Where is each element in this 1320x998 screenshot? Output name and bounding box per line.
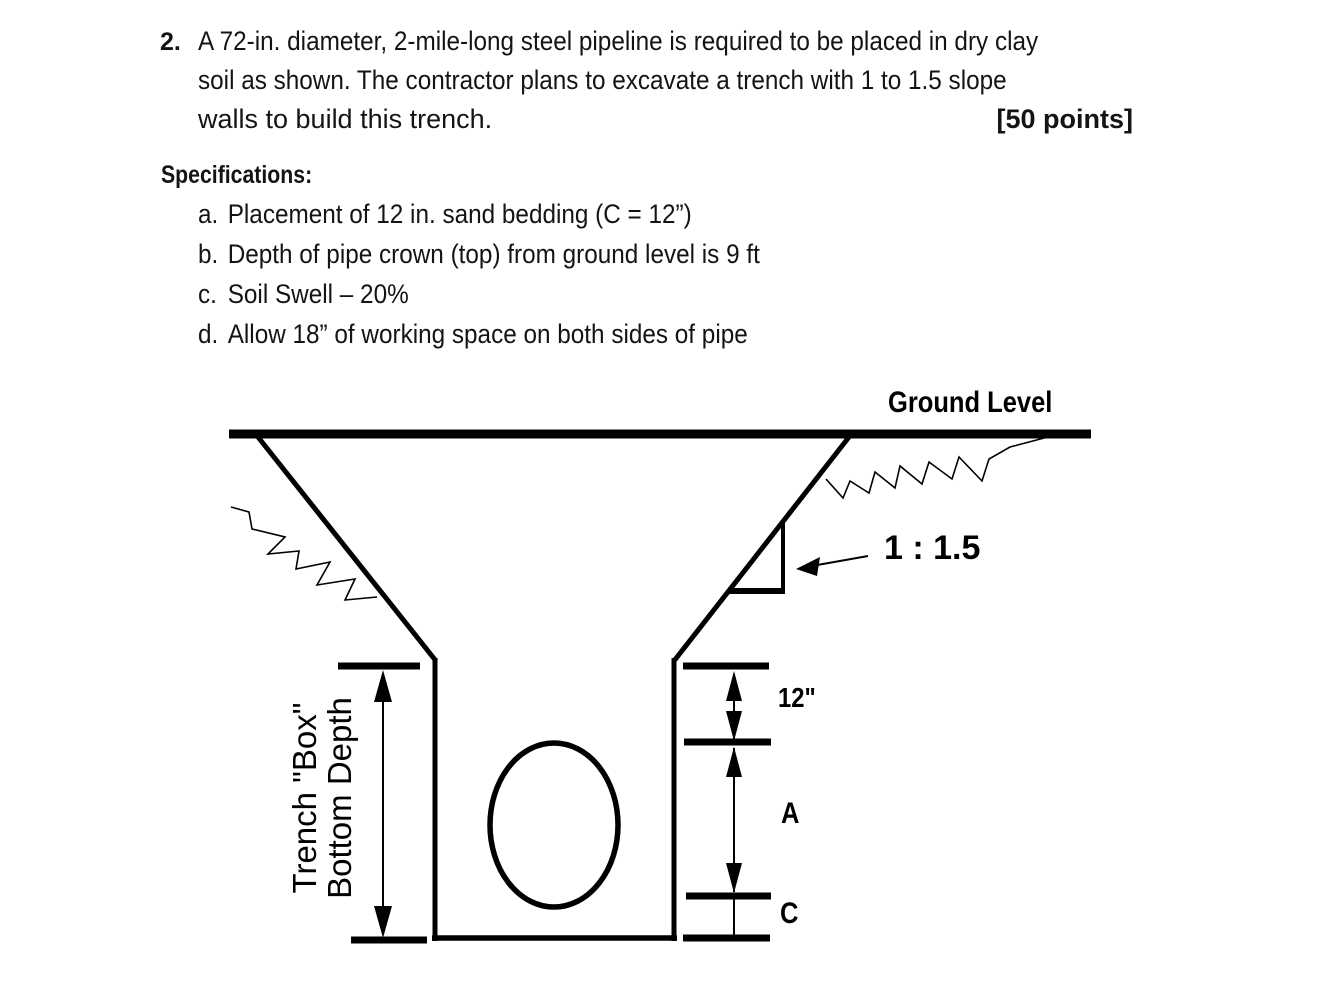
left-ground-break-line	[231, 507, 377, 600]
ground-level-label: Ground Level	[888, 386, 1052, 420]
right-slope-line	[674, 437, 849, 661]
document-page: 2. A 72-in. diameter, 2-mile-long steel …	[0, 0, 1320, 998]
bedding-dim-label: 12"	[778, 682, 816, 714]
trench-depth-label-line1: Trench "Box"	[287, 678, 322, 918]
bedding-dim-arrow-up	[726, 671, 742, 701]
slope-ratio-label: 1 : 1.5	[884, 529, 980, 568]
trench-diagram	[0, 0, 1320, 998]
depth-dim-arrow-down	[374, 906, 392, 938]
right-ground-break-line	[826, 437, 1048, 498]
slope-leader-arrowhead	[796, 557, 820, 576]
pipe-circle	[490, 743, 618, 907]
bedding-dim-arrow-down	[726, 711, 742, 741]
depth-dim-arrow-up	[374, 670, 392, 702]
dim-a-arrow-down	[726, 863, 742, 893]
dim-c-label: C	[780, 897, 798, 931]
trench-depth-label-line2: Bottom Depth	[322, 678, 357, 918]
trench-depth-label: Trench "Box" Bottom Depth	[287, 678, 359, 918]
dim-a-label: A	[781, 797, 799, 831]
dim-a-arrow-up	[726, 747, 742, 777]
left-slope-line	[258, 437, 436, 661]
